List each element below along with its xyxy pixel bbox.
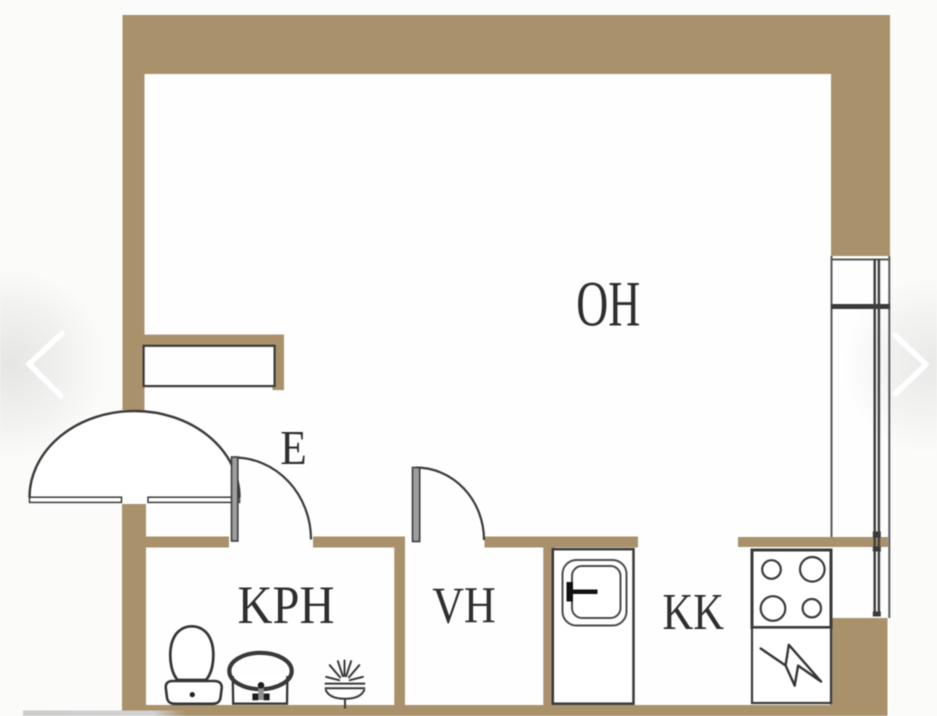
- svg-text:E: E: [280, 420, 307, 475]
- svg-text:KK: KK: [663, 584, 725, 641]
- svg-text:KPH: KPH: [238, 575, 335, 635]
- svg-text:OH: OH: [576, 269, 640, 341]
- svg-text:VH: VH: [432, 577, 496, 634]
